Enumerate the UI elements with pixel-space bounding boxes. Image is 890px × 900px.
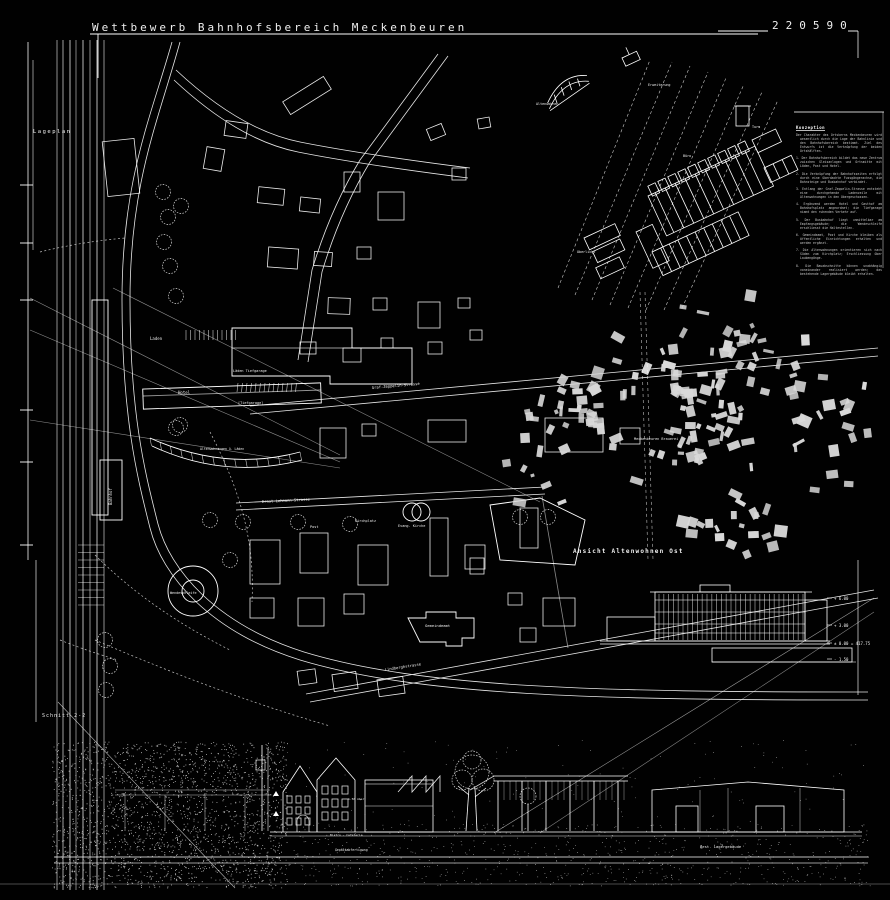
note-paragraph: 7. Die Altenwohnungen orientieren sich n… [796,249,882,261]
laeden-tiefgarage-label: Läden Tiefgarage [233,369,267,373]
hoehe-label: 1.50 über [348,797,364,801]
bistro-label: Bistro - Cafeteria [330,833,363,837]
tiefgarage-label: [Tiefgarage] [238,401,263,405]
lageplan-label: Lageplan [33,129,72,135]
note-paragraph: 8. Die Bauabschnitte können unabhängig v… [796,265,882,277]
note-paragraph: 5. Der Busbahnhof liegt unmittelbar am E… [796,219,882,231]
level-mark: ± 0.00 = 417.75 [834,641,871,646]
note-paragraph: Der Charakter des Ortskerns Meckenbeuren… [796,134,882,154]
buero-label: Büro [683,154,691,158]
bahnhof-label: Bahnhof [108,488,113,505]
drawing-canvas: Wettbewerb Bahnhofsbereich Meckenbeuren … [0,0,890,900]
laden-label: Laden [150,336,163,341]
hotel-label: Hotel [178,390,191,395]
note-paragraph: 6. Gemeindeamt, Post und Kirche bleiben … [796,234,882,246]
entry-number: 220590 [772,19,854,32]
kirchplatz-label: Kirchplatz [355,519,376,523]
post-label: Post [310,525,318,529]
notes-body: Der Charakter des Ortskerns Meckenbeuren… [796,134,882,277]
note-paragraph: 2. Die Verknüpfung der Bahnhofsseiten er… [796,173,882,185]
competition-sheet: Wettbewerb Bahnhofsbereich Meckenbeuren … [0,0,890,900]
notes-title: Konzeption [796,125,825,131]
evang-kirche-label: Evang. Kirche [398,524,425,528]
oberlicht-label: Oberlicht [577,250,595,254]
gepaeck-label: Gepäckabfertigung [335,848,368,852]
ansicht-label: Ansicht Altenwohnen Ost [573,548,684,555]
gemeindeamt-label: Gemeindeamt [425,623,450,628]
level-mark: - 1.50 [834,657,849,662]
erweiterung-label: Erweiterung [648,83,670,87]
best-lager-label: Best. Lagergebäude [700,844,742,849]
brauerei-label: Meckenbeuren Brauerei [634,437,678,441]
note-paragraph: 1. Der Bahnhofsbereich bildet das neue Z… [796,157,882,169]
level-mark: + 6.00 [834,596,849,601]
note-paragraph: 4. Ergänzend werden Hotel und Gasthof am… [796,203,882,215]
notes-block: Konzeption Der Charakter des Ortskerns M… [796,114,882,280]
turm-label: Turm [752,125,760,129]
altenwohnungen-label: Altenwohnungen ü. Läden [200,447,244,451]
wendeschleife-label: Wendeschleife [170,591,197,595]
note-paragraph: 3. Entlang der Graf-Zeppelin-Strasse ent… [796,188,882,200]
schnitt-label: Schnitt 2-2 [42,713,86,719]
level-mark: + 3.00 [834,623,849,628]
sheet-title: Wettbewerb Bahnhofsbereich Meckenbeuren [92,21,467,34]
altenwohnen-label: Altenwohnen [536,102,558,106]
